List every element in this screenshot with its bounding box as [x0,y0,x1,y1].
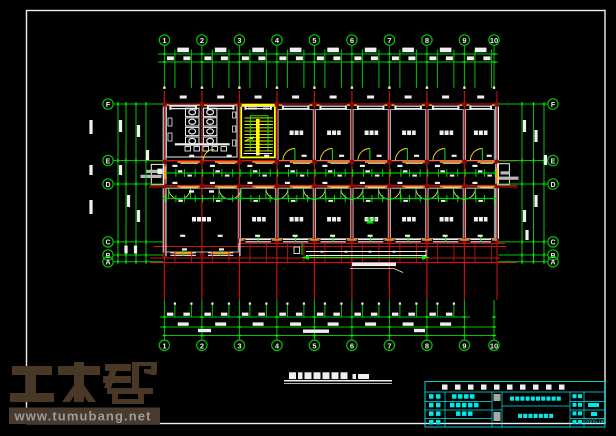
svg-text:E: E [106,158,111,165]
svg-text:1: 1 [162,36,166,45]
svg-text:6: 6 [350,36,354,45]
svg-text:9: 9 [462,341,466,350]
svg-text:8: 8 [425,36,429,45]
svg-text:C: C [550,240,555,247]
svg-text:C: C [105,240,110,247]
svg-text:2005.06: 2005.06 [585,420,605,426]
svg-text:F: F [106,102,111,109]
svg-text:8: 8 [425,341,429,350]
svg-text:5: 5 [312,36,316,45]
svg-text:D: D [550,182,555,189]
svg-text:10: 10 [490,341,498,350]
svg-text:9: 9 [462,36,466,45]
svg-text:6: 6 [350,341,354,350]
svg-text:A: A [105,260,110,267]
svg-text:1: 1 [162,341,166,350]
svg-text:www.tumubang.net: www.tumubang.net [14,409,152,424]
svg-text:F: F [551,102,556,109]
svg-text:7: 7 [387,36,391,45]
svg-text:10: 10 [490,36,498,45]
svg-text:5: 5 [312,341,316,350]
svg-text:E: E [551,158,556,165]
svg-text:A: A [550,260,555,267]
svg-text:2: 2 [200,341,204,350]
svg-text:D: D [105,182,110,189]
svg-text:3: 3 [237,341,241,350]
svg-text:2: 2 [200,36,204,45]
svg-text:7: 7 [387,341,391,350]
svg-text:3: 3 [237,36,241,45]
